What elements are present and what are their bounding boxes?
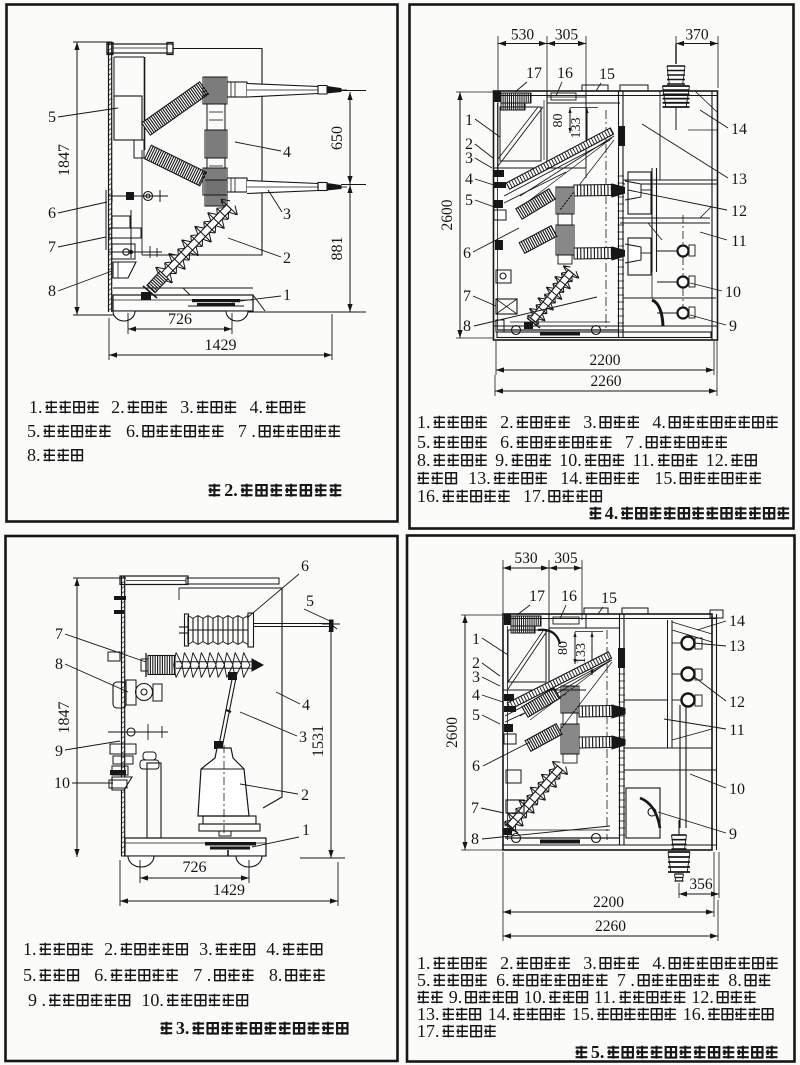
svg-text:8: 8 [55, 656, 63, 673]
svg-text:8.: 8. [27, 445, 41, 465]
svg-text:12: 12 [731, 203, 747, 220]
svg-text:7: 7 [471, 800, 479, 817]
svg-text:80: 80 [556, 641, 571, 655]
svg-text:1.: 1. [23, 939, 37, 959]
svg-text:3: 3 [299, 729, 307, 746]
svg-text:133: 133 [569, 118, 584, 139]
svg-text:9 .: 9 . [28, 990, 46, 1010]
svg-text:80: 80 [551, 114, 566, 128]
svg-text:1.: 1. [417, 412, 431, 432]
svg-text:4.: 4. [605, 503, 619, 523]
svg-text:10.: 10. [559, 450, 582, 470]
svg-text:2.: 2. [104, 939, 118, 959]
svg-text:9.: 9. [449, 987, 463, 1007]
svg-text:1847: 1847 [56, 144, 73, 176]
svg-text:8.: 8. [417, 450, 431, 470]
svg-text:4.: 4. [266, 939, 280, 959]
svg-text:7 .: 7 . [617, 970, 635, 990]
svg-text:14: 14 [729, 613, 745, 630]
svg-text:11.: 11. [633, 450, 655, 470]
svg-text:6: 6 [301, 558, 309, 575]
svg-text:2200: 2200 [590, 352, 621, 369]
svg-text:10: 10 [729, 781, 745, 798]
svg-text:530: 530 [514, 550, 538, 567]
svg-text:6: 6 [463, 245, 471, 262]
svg-text:15: 15 [601, 590, 617, 607]
svg-text:881: 881 [329, 237, 346, 261]
svg-text:6: 6 [48, 205, 56, 222]
svg-text:530: 530 [511, 27, 535, 44]
svg-text:370: 370 [685, 27, 709, 44]
svg-text:10: 10 [54, 775, 70, 792]
svg-text:5: 5 [306, 593, 314, 610]
svg-text:1429: 1429 [213, 882, 245, 899]
svg-text:7: 7 [48, 239, 56, 256]
svg-text:2260: 2260 [591, 373, 622, 390]
svg-text:1531: 1531 [310, 725, 327, 757]
svg-text:2260: 2260 [595, 918, 626, 935]
svg-text:4: 4 [302, 697, 310, 714]
svg-text:5.: 5. [417, 970, 431, 990]
svg-text:7: 7 [463, 288, 471, 305]
svg-text:8: 8 [463, 318, 471, 335]
svg-text:4: 4 [465, 171, 473, 188]
svg-text:7 .: 7 . [238, 421, 256, 441]
svg-text:650: 650 [329, 126, 346, 150]
svg-text:17.: 17. [417, 1021, 440, 1041]
svg-text:16.: 16. [683, 1004, 706, 1024]
svg-text:1: 1 [283, 287, 291, 304]
svg-text:2.: 2. [500, 412, 513, 432]
svg-text:2: 2 [283, 250, 291, 267]
svg-text:356: 356 [689, 876, 713, 893]
svg-text:10.: 10. [524, 987, 547, 1007]
svg-text:16: 16 [557, 65, 573, 82]
svg-text:6.: 6. [94, 965, 108, 985]
svg-text:2600: 2600 [444, 717, 461, 748]
svg-text:305: 305 [555, 27, 579, 44]
svg-text:7 .: 7 . [625, 432, 643, 452]
svg-text:305: 305 [554, 550, 578, 567]
svg-text:9: 9 [729, 826, 737, 843]
svg-text:2.: 2. [224, 480, 238, 500]
svg-text:11: 11 [729, 722, 744, 739]
svg-text:13: 13 [731, 171, 747, 188]
svg-text:16.: 16. [417, 486, 440, 506]
svg-text:14.: 14. [560, 468, 583, 488]
svg-text:4: 4 [283, 144, 291, 161]
svg-text:6.: 6. [500, 432, 513, 452]
svg-text:9: 9 [55, 743, 63, 760]
svg-text:8: 8 [48, 283, 56, 300]
svg-text:5: 5 [48, 109, 56, 126]
svg-text:3.: 3. [583, 412, 597, 432]
svg-text:5: 5 [472, 707, 480, 724]
svg-text:4.: 4. [652, 412, 666, 432]
svg-text:8: 8 [471, 831, 479, 848]
svg-text:15.: 15. [654, 468, 677, 488]
svg-text:5: 5 [465, 192, 473, 209]
svg-text:5.: 5. [591, 1042, 605, 1062]
svg-text:2: 2 [301, 787, 309, 804]
svg-text:7 .: 7 . [193, 965, 211, 985]
svg-text:1847: 1847 [56, 702, 73, 734]
svg-text:11.: 11. [594, 987, 616, 1007]
svg-text:2.: 2. [111, 397, 125, 417]
svg-text:4: 4 [472, 687, 480, 704]
svg-text:3.: 3. [180, 397, 194, 417]
svg-text:17: 17 [526, 65, 542, 82]
svg-text:3: 3 [283, 206, 291, 223]
svg-text:13: 13 [729, 638, 745, 655]
svg-text:10: 10 [725, 284, 741, 301]
svg-text:1: 1 [472, 631, 480, 648]
svg-text:3.: 3. [583, 953, 597, 973]
svg-text:3: 3 [465, 150, 473, 167]
svg-text:3.: 3. [199, 939, 213, 959]
svg-text:2200: 2200 [593, 894, 624, 911]
svg-text:13.: 13. [468, 468, 491, 488]
svg-text:6.: 6. [496, 970, 510, 990]
svg-text:4.: 4. [652, 953, 666, 973]
svg-text:3.: 3. [176, 1018, 190, 1038]
svg-text:1.: 1. [29, 397, 43, 417]
svg-text:17: 17 [529, 588, 545, 605]
svg-text:9: 9 [729, 318, 737, 335]
svg-text:1: 1 [302, 822, 310, 839]
svg-text:11: 11 [731, 233, 746, 250]
svg-text:5.: 5. [27, 421, 41, 441]
svg-text:5.: 5. [23, 965, 37, 985]
svg-text:726: 726 [168, 311, 192, 328]
svg-text:3: 3 [472, 669, 480, 686]
svg-text:726: 726 [183, 859, 207, 876]
svg-text:5.: 5. [417, 432, 431, 452]
svg-text:9.: 9. [495, 450, 509, 470]
svg-text:10.: 10. [141, 990, 164, 1010]
svg-text:8.: 8. [269, 965, 283, 985]
svg-text:133: 133 [574, 643, 589, 664]
svg-text:8.: 8. [728, 970, 742, 990]
svg-text:12: 12 [729, 694, 745, 711]
svg-text:1: 1 [465, 112, 473, 129]
svg-text:14.: 14. [488, 1004, 511, 1024]
svg-text:12.: 12. [706, 450, 729, 470]
svg-text:17.: 17. [523, 486, 546, 506]
svg-text:6.: 6. [126, 421, 140, 441]
svg-text:14: 14 [731, 121, 747, 138]
svg-text:1429: 1429 [205, 337, 237, 354]
svg-text:7: 7 [55, 626, 63, 643]
svg-text:2600: 2600 [439, 199, 456, 230]
svg-text:6: 6 [472, 758, 480, 775]
svg-text:15: 15 [599, 66, 615, 83]
svg-text:4.: 4. [250, 397, 264, 417]
svg-text:15.: 15. [572, 1004, 595, 1024]
svg-text:16: 16 [561, 588, 577, 605]
